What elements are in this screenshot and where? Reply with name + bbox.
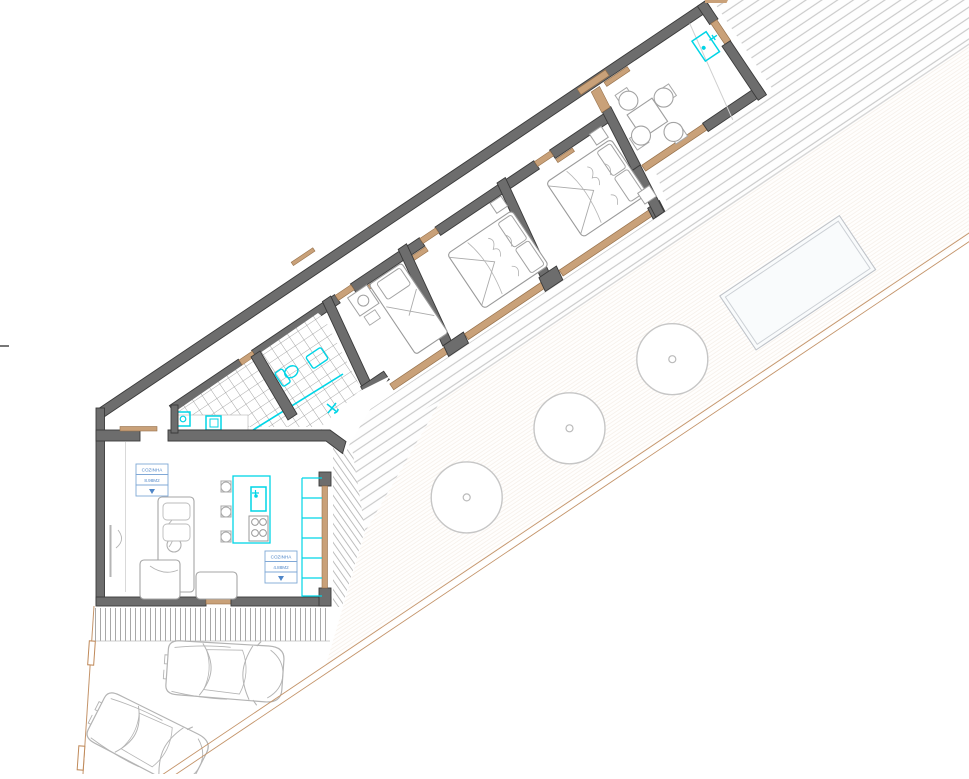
svg-text:8.98M2: 8.98M2 <box>144 478 160 483</box>
svg-text:COZINHA: COZINHA <box>271 555 293 560</box>
svg-text:COZINHA: COZINHA <box>142 468 164 473</box>
svg-text:4.88M2: 4.88M2 <box>273 565 289 570</box>
